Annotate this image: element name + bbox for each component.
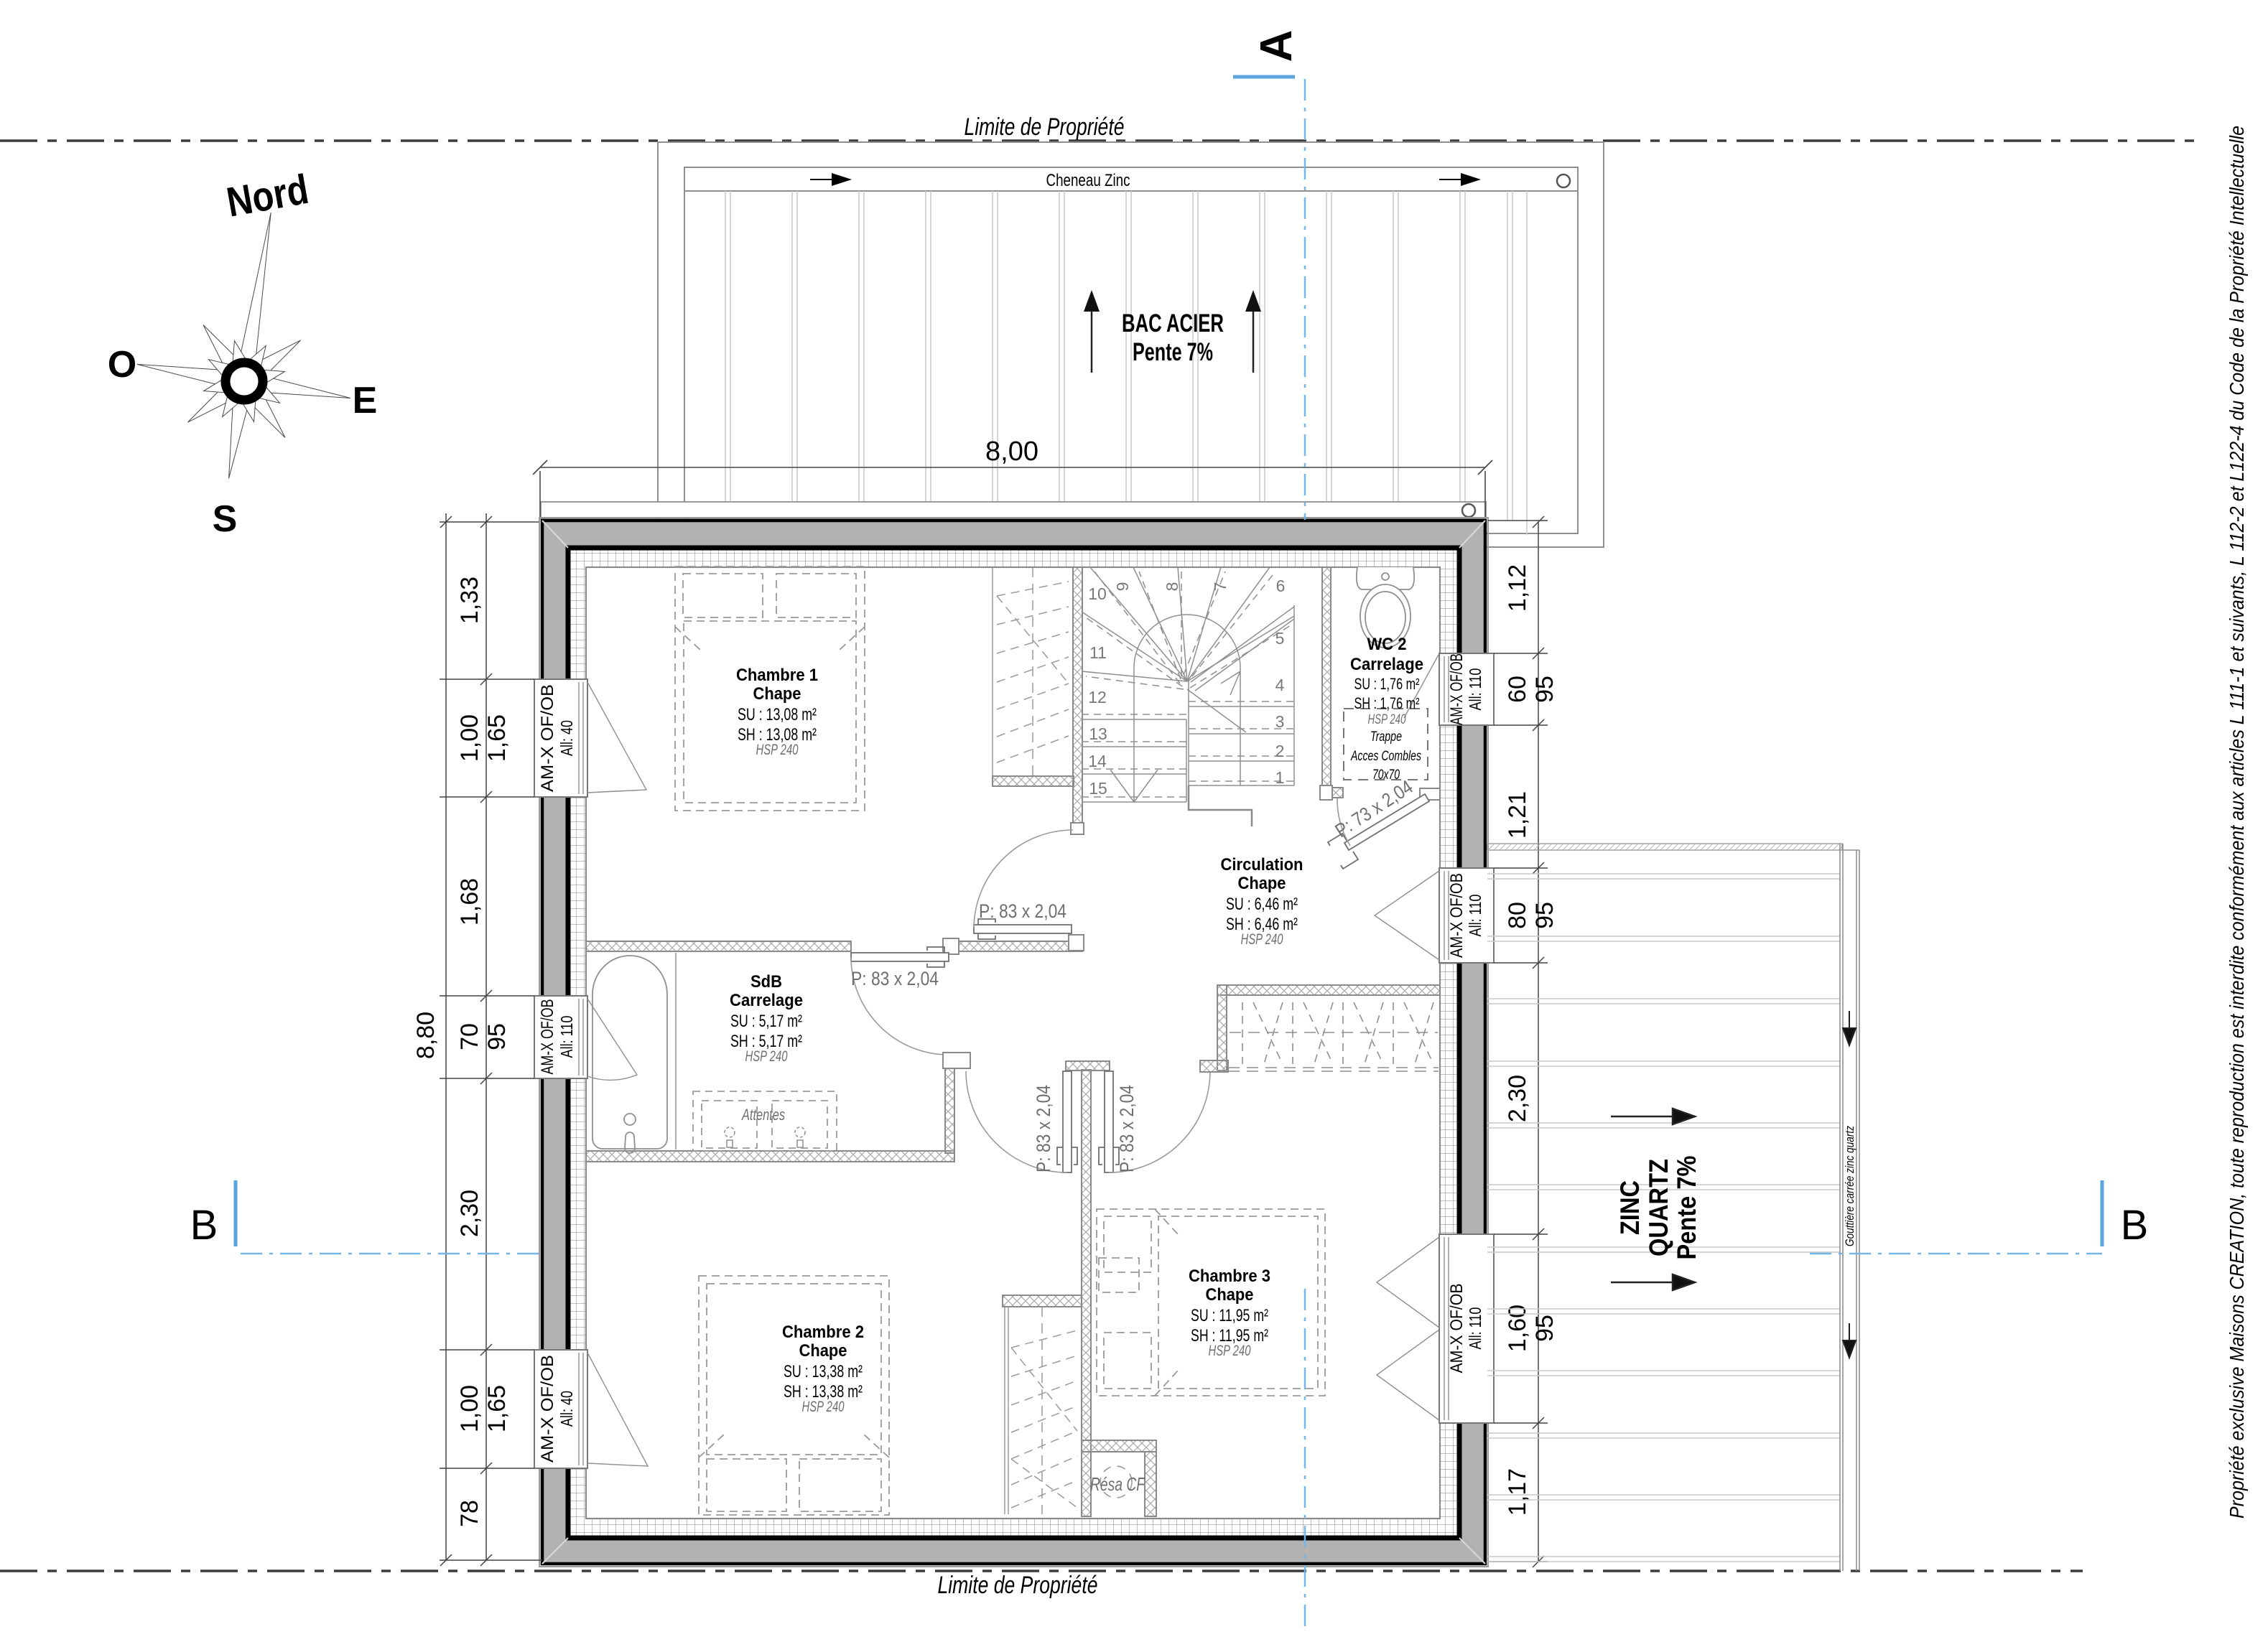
svg-text:8: 8 [1163, 582, 1181, 592]
svg-text:A: A [1252, 30, 1301, 62]
svg-text:80: 80 [1504, 902, 1531, 929]
svg-text:Circulation: Circulation [1221, 855, 1303, 875]
svg-text:12: 12 [1088, 688, 1107, 706]
svg-text:70x70: 70x70 [1372, 768, 1400, 783]
svg-text:78: 78 [456, 1500, 483, 1527]
svg-text:70: 70 [456, 1023, 483, 1050]
svg-text:P: 83 x 2,04: P: 83 x 2,04 [979, 900, 1066, 922]
svg-text:8,80: 8,80 [412, 1012, 440, 1059]
svg-text:All: 110: All: 110 [1466, 1307, 1484, 1350]
svg-text:Attentes: Attentes [741, 1106, 785, 1124]
svg-text:1,60: 1,60 [1504, 1305, 1531, 1352]
svg-text:Chape: Chape [799, 1341, 847, 1361]
svg-text:HSP 240: HSP 240 [1241, 931, 1283, 948]
svg-text:B: B [2121, 1202, 2149, 1249]
svg-text:BAC ACIER: BAC ACIER [1122, 309, 1224, 337]
svg-text:10: 10 [1088, 584, 1107, 603]
svg-text:Chambre 3: Chambre 3 [1189, 1267, 1270, 1286]
svg-text:Pente 7%: Pente 7% [1133, 338, 1213, 366]
svg-text:AM-X OF/OB: AM-X OF/OB [1447, 1284, 1467, 1374]
svg-text:Chape: Chape [753, 684, 801, 704]
svg-text:HSP 240: HSP 240 [745, 1048, 788, 1065]
svg-text:Limite de Propriété: Limite de Propriété [965, 113, 1125, 141]
svg-text:1,12: 1,12 [1504, 564, 1531, 612]
svg-text:All: 110: All: 110 [557, 1016, 576, 1058]
svg-text:SU : 1,76 m²: SU : 1,76 m² [1354, 675, 1420, 693]
svg-text:95: 95 [1531, 1315, 1558, 1342]
svg-text:9: 9 [1113, 582, 1132, 592]
svg-text:Pente 7%: Pente 7% [1672, 1156, 1701, 1260]
svg-text:All: 110: All: 110 [1466, 895, 1484, 937]
svg-text:SU : 11,95 m²: SU : 11,95 m² [1191, 1306, 1268, 1325]
svg-text:P: 83 x 2,04: P: 83 x 2,04 [1033, 1085, 1054, 1172]
svg-text:SU : 13,08 m²: SU : 13,08 m² [738, 705, 817, 724]
svg-text:3: 3 [1275, 712, 1285, 731]
svg-text:60: 60 [1504, 676, 1531, 703]
svg-text:Chape: Chape [1206, 1285, 1254, 1305]
svg-text:HSP 240: HSP 240 [1368, 712, 1406, 727]
svg-text:WC 2: WC 2 [1367, 635, 1407, 654]
svg-text:14: 14 [1088, 752, 1107, 770]
svg-text:HSP 240: HSP 240 [802, 1399, 845, 1415]
svg-text:B: B [190, 1202, 218, 1249]
svg-text:Gouttière carrée zinc quartz: Gouttière carrée zinc quartz [1843, 1126, 1856, 1246]
svg-text:Cheneau Zinc: Cheneau Zinc [1046, 171, 1130, 190]
svg-text:1,00: 1,00 [456, 714, 483, 762]
svg-text:11: 11 [1089, 643, 1107, 662]
svg-text:P: 83 x 2,04: P: 83 x 2,04 [851, 968, 939, 989]
svg-text:1,17: 1,17 [1504, 1468, 1531, 1516]
svg-text:Chambre 1: Chambre 1 [736, 666, 818, 685]
svg-text:5: 5 [1275, 629, 1285, 648]
svg-text:Résa CF: Résa CF [1090, 1473, 1146, 1495]
svg-text:AM-X OF/OB: AM-X OF/OB [538, 684, 557, 792]
svg-text:S: S [213, 498, 238, 540]
svg-text:All: 40: All: 40 [557, 1391, 576, 1427]
svg-text:E: E [353, 380, 378, 421]
svg-text:AM-X OF/OB: AM-X OF/OB [1447, 653, 1467, 725]
svg-text:13: 13 [1089, 724, 1107, 743]
svg-text:95: 95 [1531, 902, 1558, 929]
svg-text:All: 40: All: 40 [557, 720, 576, 756]
svg-text:Trappe: Trappe [1370, 729, 1402, 745]
svg-text:SU : 5,17 m²: SU : 5,17 m² [730, 1012, 802, 1031]
svg-text:SU : 6,46 m²: SU : 6,46 m² [1226, 895, 1298, 914]
svg-text:HSP 240: HSP 240 [756, 742, 799, 758]
svg-text:P: 83 x 2,04: P: 83 x 2,04 [1116, 1085, 1138, 1172]
svg-text:1,65: 1,65 [483, 714, 511, 762]
svg-text:2: 2 [1275, 742, 1285, 760]
svg-text:95: 95 [483, 1023, 511, 1050]
svg-text:1: 1 [1275, 768, 1285, 787]
svg-text:Propriété exclusive Maisons CR: Propriété exclusive Maisons CREATION, to… [2226, 126, 2248, 1519]
svg-text:Limite de Propriété: Limite de Propriété [938, 1572, 1098, 1599]
svg-text:HSP 240: HSP 240 [1209, 1343, 1251, 1359]
svg-text:1,68: 1,68 [456, 878, 483, 925]
svg-text:SdB: SdB [750, 972, 782, 992]
svg-text:4: 4 [1275, 676, 1285, 694]
svg-text:Carrelage: Carrelage [1350, 655, 1423, 674]
svg-text:1,65: 1,65 [483, 1385, 511, 1432]
svg-text:Carrelage: Carrelage [730, 991, 803, 1010]
svg-text:ZINC: ZINC [1615, 1180, 1645, 1235]
svg-text:1,33: 1,33 [456, 577, 483, 624]
svg-text:O: O [108, 344, 136, 386]
svg-text:AM-X OF/OB: AM-X OF/OB [1447, 873, 1467, 958]
svg-text:Chambre 2: Chambre 2 [782, 1323, 864, 1342]
svg-text:8,00: 8,00 [985, 437, 1038, 467]
svg-text:2,30: 2,30 [456, 1190, 483, 1237]
svg-text:Chape: Chape [1238, 874, 1286, 893]
svg-text:SU : 13,38 m²: SU : 13,38 m² [784, 1362, 863, 1381]
svg-text:2,30: 2,30 [1504, 1075, 1531, 1122]
svg-text:SH : 1,76 m²: SH : 1,76 m² [1354, 694, 1420, 712]
svg-text:AM-X OF/OB: AM-X OF/OB [538, 999, 557, 1075]
svg-text:1,21: 1,21 [1504, 791, 1531, 839]
svg-text:7: 7 [1211, 582, 1230, 592]
svg-text:95: 95 [1531, 676, 1558, 703]
svg-text:AM-X OF/OB: AM-X OF/OB [538, 1355, 557, 1463]
svg-text:1,00: 1,00 [456, 1385, 483, 1432]
svg-text:Acces Combles: Acces Combles [1350, 749, 1421, 764]
svg-text:15: 15 [1089, 779, 1107, 798]
svg-text:6: 6 [1276, 577, 1286, 595]
svg-text:QUARTZ: QUARTZ [1644, 1159, 1673, 1256]
svg-text:All: 110: All: 110 [1466, 668, 1484, 711]
